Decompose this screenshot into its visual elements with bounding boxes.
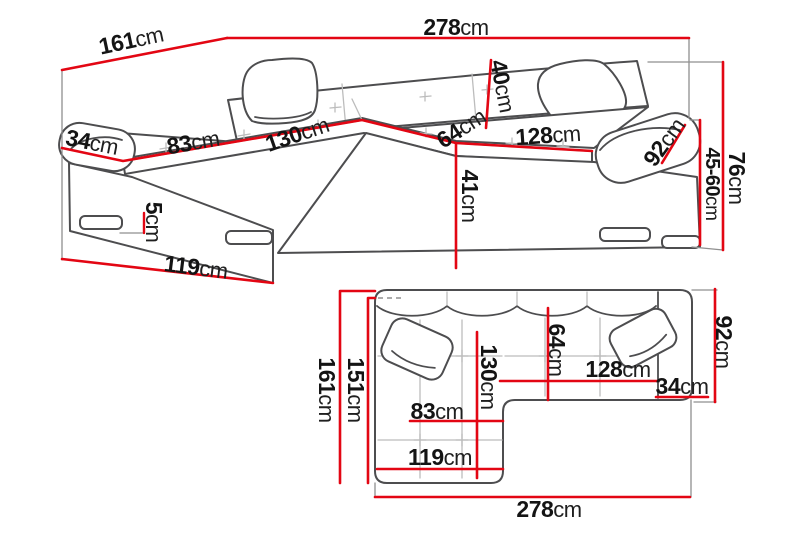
perspective-view: 278cm 161cm 34cm 83cm 130cm 64cm 128cm 4… (56, 14, 750, 284)
plan-label-seat-depth: 64cm (544, 324, 570, 377)
plan-label-depth-inner: 151cm (343, 357, 369, 422)
plan-label-chaise-seat: 83cm (411, 398, 464, 424)
dimension-diagram: 278cm 161cm 34cm 83cm 130cm 64cm 128cm 4… (0, 0, 800, 533)
sofa-leg (662, 236, 700, 248)
persp-label-total-depth: 161cm (96, 21, 165, 60)
persp-label-seat-length: 128cm (515, 120, 582, 150)
persp-label-arm-height: 45-60cm (701, 148, 723, 221)
sofa-leg (226, 231, 272, 244)
persp-label-total-height: 76cm (724, 152, 750, 205)
sofa-leg (600, 228, 650, 241)
persp-label-seat-height: 41cm (457, 170, 483, 223)
plan-view: 161cm 151cm 130cm 64cm 92cm 83cm 119cm 1… (314, 289, 737, 522)
plan-label-arm-width: 34cm (656, 373, 709, 399)
sofa-leg (80, 216, 122, 229)
persp-label-total-width: 278cm (423, 14, 488, 40)
plan-label-arm-depth: 92cm (711, 316, 737, 369)
plan-label-chaise-width: 119cm (408, 444, 472, 470)
plan-label-width-total: 278cm (516, 496, 581, 522)
persp-label-leg-height: 5cm (141, 202, 167, 243)
plan-label-chaise-length: 130cm (476, 344, 502, 409)
plan-label-depth-total: 161cm (314, 357, 340, 422)
diagram-canvas: 278cm 161cm 34cm 83cm 130cm 64cm 128cm 4… (0, 0, 800, 533)
plan-label-seat-length: 128cm (585, 356, 650, 382)
